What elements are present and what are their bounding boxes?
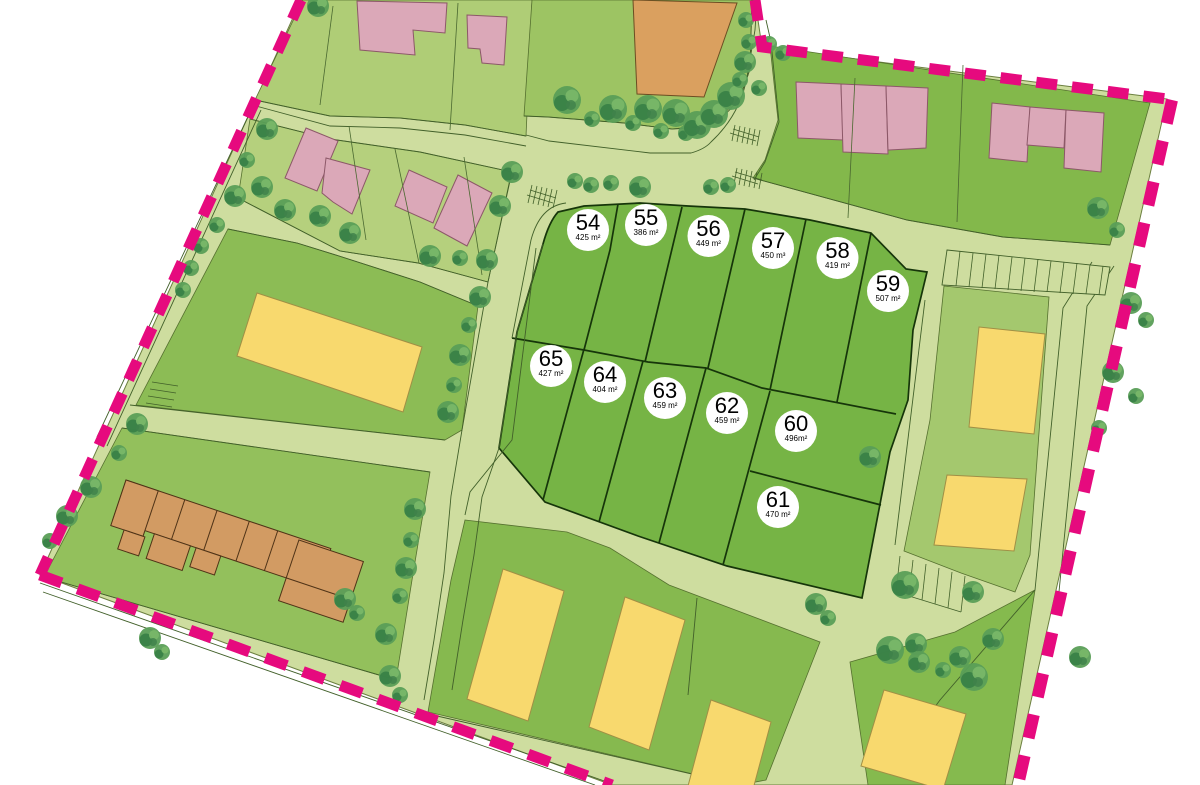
svg-text:419 m²: 419 m²	[825, 261, 850, 270]
svg-text:63: 63	[653, 378, 677, 403]
svg-text:427 m²: 427 m²	[539, 369, 564, 378]
svg-text:425 m²: 425 m²	[576, 233, 601, 242]
svg-text:61: 61	[766, 487, 790, 512]
svg-text:57: 57	[761, 228, 785, 253]
svg-text:56: 56	[696, 216, 720, 241]
svg-text:65: 65	[539, 346, 563, 371]
svg-text:386 m²: 386 m²	[634, 228, 659, 237]
svg-text:60: 60	[784, 411, 808, 436]
svg-text:459 m²: 459 m²	[715, 416, 740, 425]
svg-text:59: 59	[876, 271, 900, 296]
svg-text:404 m²: 404 m²	[593, 385, 618, 394]
svg-text:449 m²: 449 m²	[696, 239, 721, 248]
svg-text:459 m²: 459 m²	[653, 401, 678, 410]
svg-text:450 m³: 450 m³	[761, 251, 786, 260]
svg-text:507 m²: 507 m²	[876, 294, 901, 303]
svg-text:54: 54	[576, 210, 600, 235]
svg-text:64: 64	[593, 362, 617, 387]
svg-text:55: 55	[634, 205, 658, 230]
svg-text:58: 58	[825, 238, 849, 263]
svg-text:62: 62	[715, 393, 739, 418]
svg-text:470 m²: 470 m²	[766, 510, 791, 519]
svg-text:496m²: 496m²	[785, 434, 808, 443]
